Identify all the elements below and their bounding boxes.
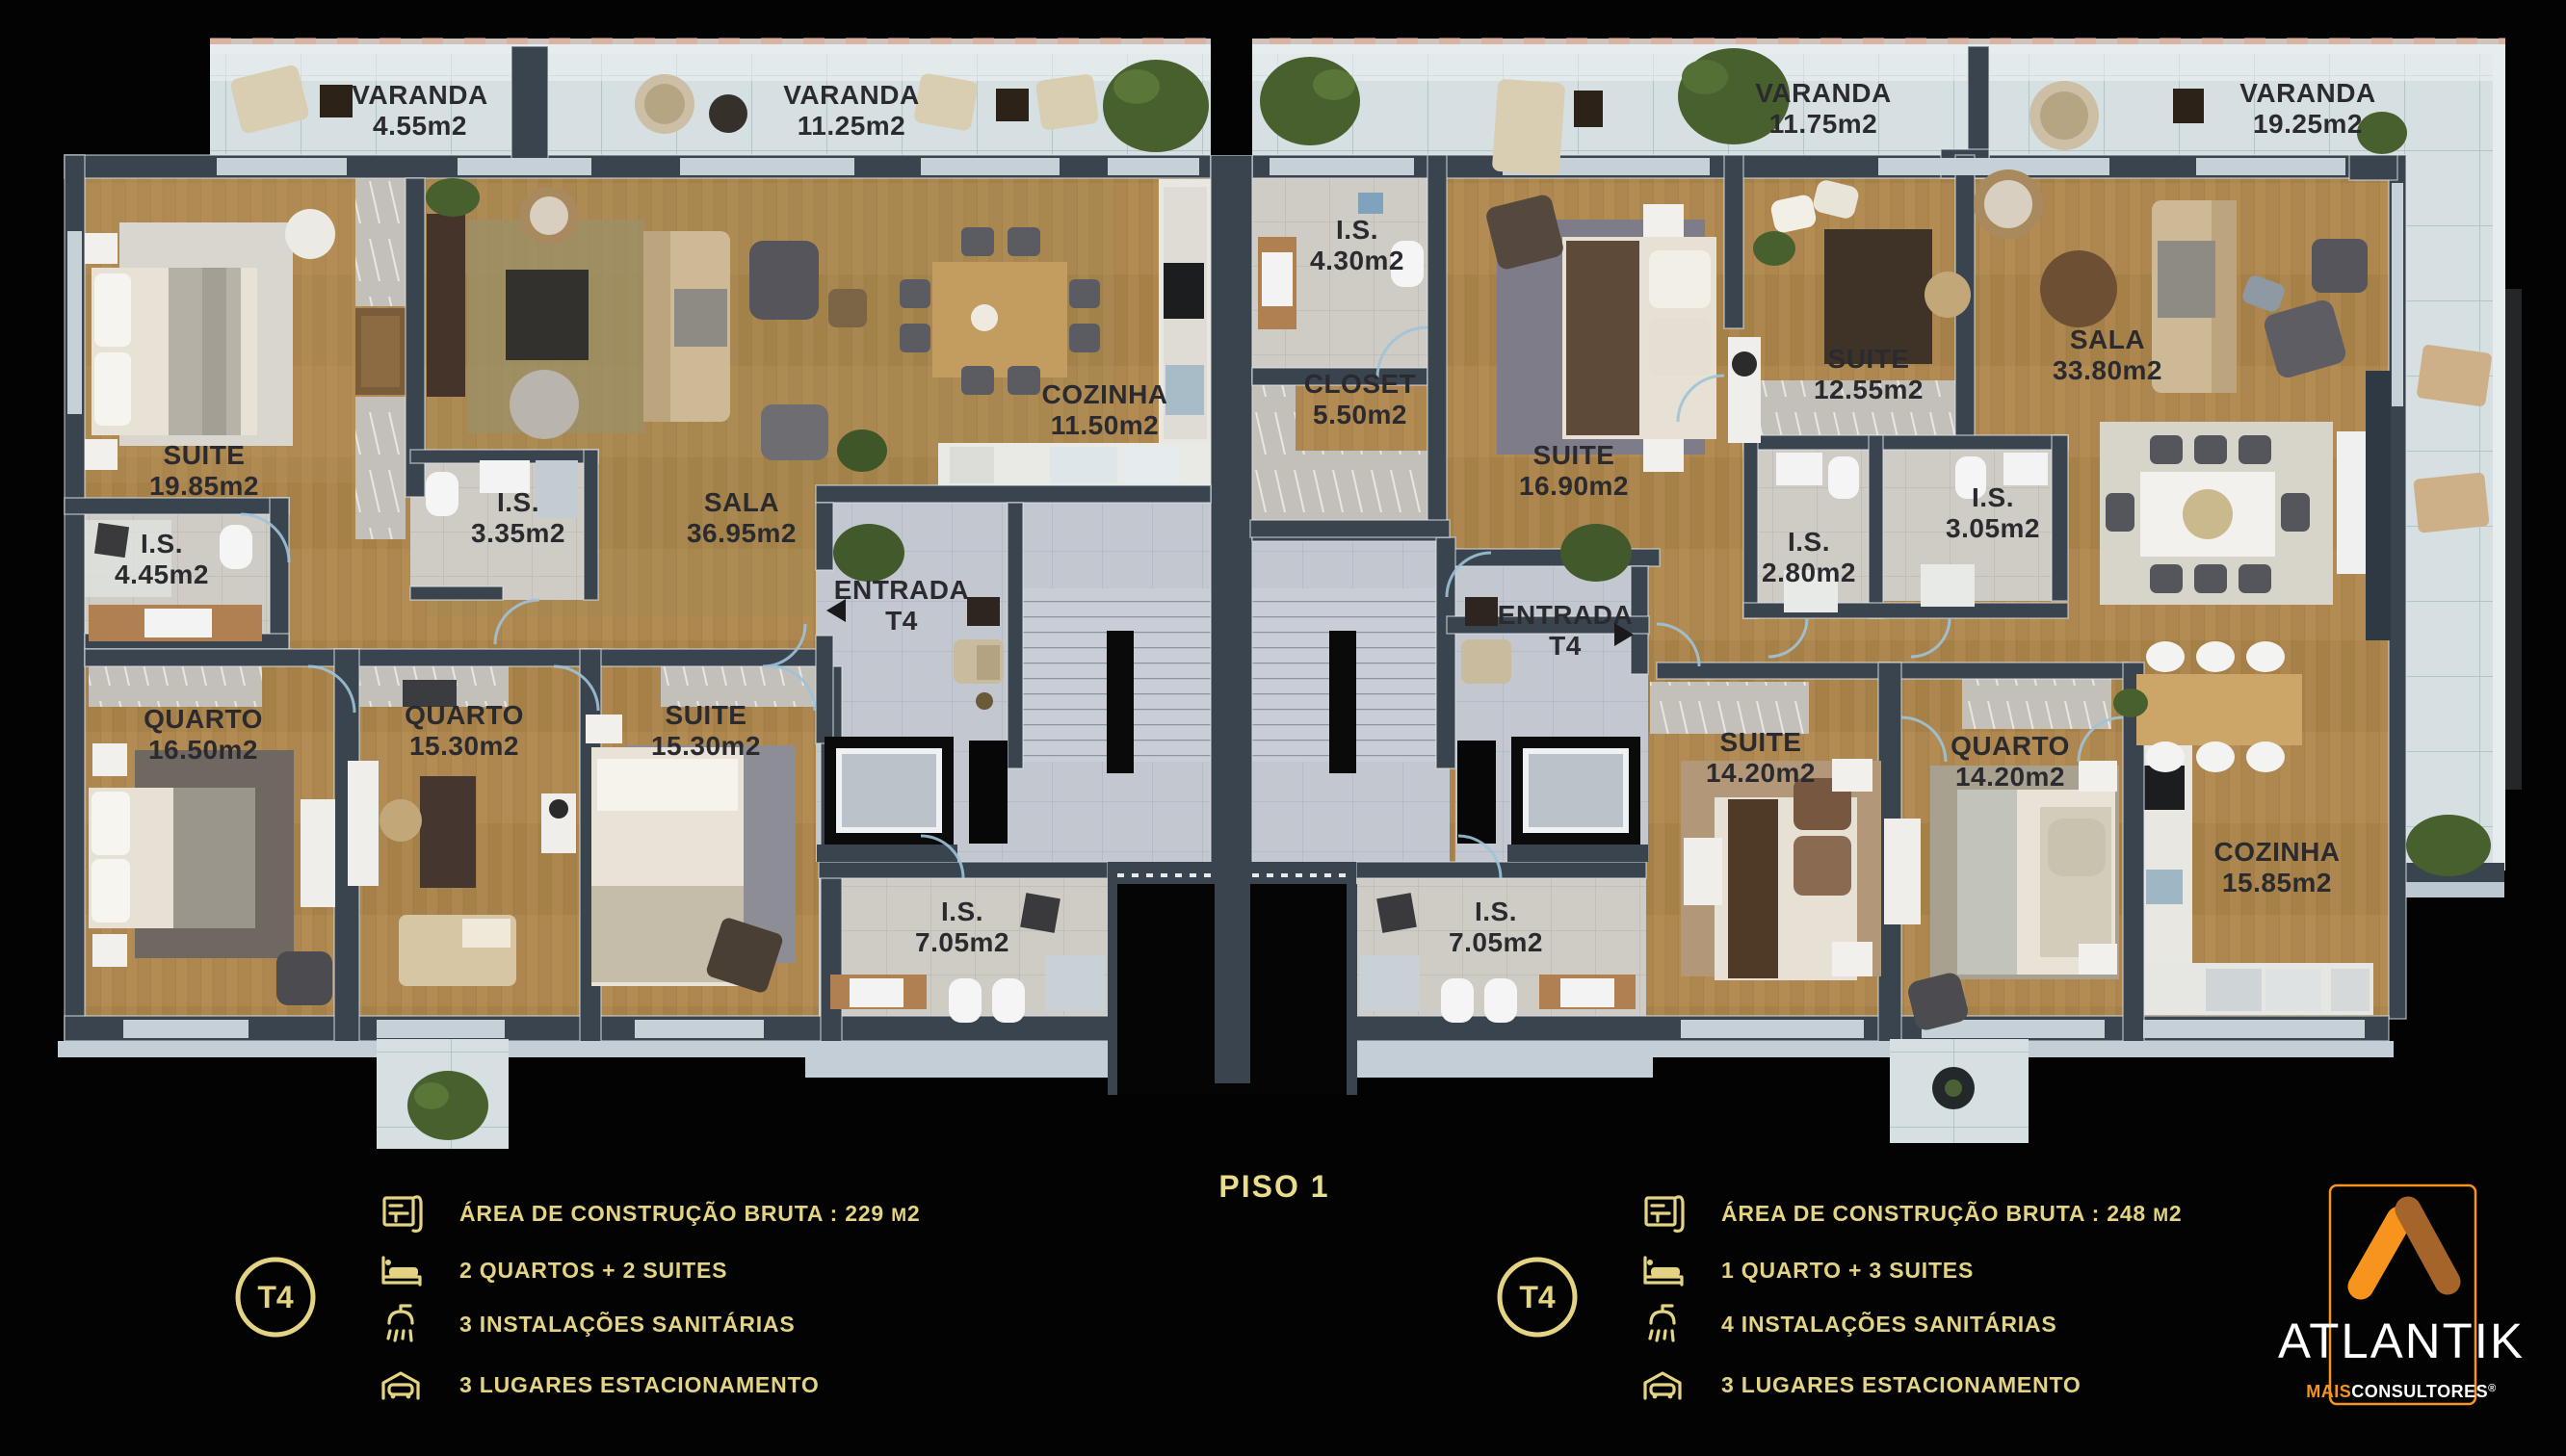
- svg-text:3 LUGARES ESTACIONAMENTO: 3 LUGARES ESTACIONAMENTO: [1721, 1372, 2082, 1397]
- svg-text:MAISCONSULTORES®: MAISCONSULTORES®: [2306, 1382, 2496, 1401]
- svg-text:T4: T4: [1549, 631, 1582, 661]
- svg-text:QUARTO: QUARTO: [405, 700, 524, 730]
- svg-text:5.50m2: 5.50m2: [1313, 400, 1407, 429]
- svg-text:T4: T4: [885, 606, 918, 636]
- svg-text:4.55m2: 4.55m2: [373, 111, 467, 141]
- svg-text:VARANDA: VARANDA: [352, 80, 487, 110]
- svg-text:SUITE: SUITE: [1720, 727, 1802, 757]
- svg-text:SUITE: SUITE: [1828, 344, 1910, 374]
- svg-text:16.50m2: 16.50m2: [148, 735, 258, 765]
- svg-text:QUARTO: QUARTO: [1951, 731, 2070, 761]
- svg-text:11.50m2: 11.50m2: [1051, 410, 1160, 440]
- svg-text:16.90m2: 16.90m2: [1519, 471, 1629, 501]
- svg-text:7.05m2: 7.05m2: [915, 927, 1009, 957]
- svg-text:36.95m2: 36.95m2: [687, 518, 797, 548]
- svg-text:VARANDA: VARANDA: [783, 80, 919, 110]
- svg-text:3.35m2: 3.35m2: [471, 518, 565, 548]
- svg-text:I.S.: I.S.: [941, 897, 983, 926]
- svg-text:I.S.: I.S.: [1788, 527, 1830, 557]
- svg-text:19.25m2: 19.25m2: [2253, 109, 2363, 139]
- svg-text:3.05m2: 3.05m2: [1946, 513, 2040, 543]
- svg-text:SALA: SALA: [704, 487, 779, 517]
- svg-text:2.80m2: 2.80m2: [1762, 558, 1856, 587]
- svg-text:T4: T4: [257, 1280, 294, 1314]
- svg-text:19.85m2: 19.85m2: [149, 471, 259, 501]
- svg-text:15.85m2: 15.85m2: [2222, 868, 2332, 897]
- svg-text:11.25m2: 11.25m2: [798, 111, 906, 141]
- svg-text:I.S.: I.S.: [1336, 215, 1378, 245]
- svg-text:VARANDA: VARANDA: [2239, 78, 2375, 108]
- svg-text:2 QUARTOS + 2 SUITES: 2 QUARTOS + 2 SUITES: [459, 1258, 727, 1283]
- svg-text:SUITE: SUITE: [164, 440, 246, 470]
- svg-text:SUITE: SUITE: [1533, 440, 1615, 470]
- svg-text:SUITE: SUITE: [666, 700, 747, 730]
- svg-text:COZINHA: COZINHA: [1041, 379, 1167, 409]
- svg-text:1 QUARTO + 3 SUITES: 1 QUARTO + 3 SUITES: [1721, 1258, 1974, 1283]
- svg-text:15.30m2: 15.30m2: [409, 731, 519, 761]
- svg-text:ÁREA DE CONSTRUÇÃO BRUTA : 22: ÁREA DE CONSTRUÇÃO BRUTA : 229 M2: [459, 1200, 920, 1226]
- svg-text:4.45m2: 4.45m2: [115, 559, 209, 589]
- svg-text:I.S.: I.S.: [1475, 897, 1517, 926]
- svg-text:ENTRADA: ENTRADA: [834, 575, 969, 605]
- svg-text:ÁREA DE CONSTRUÇÃO BRUTA : 24: ÁREA DE CONSTRUÇÃO BRUTA : 248 M2: [1721, 1200, 2182, 1226]
- svg-text:12.55m2: 12.55m2: [1814, 375, 1924, 404]
- svg-text:4.30m2: 4.30m2: [1310, 246, 1404, 275]
- svg-text:COZINHA: COZINHA: [2213, 837, 2340, 867]
- svg-text:33.80m2: 33.80m2: [2053, 355, 2162, 385]
- svg-text:I.S.: I.S.: [497, 487, 539, 517]
- svg-text:ENTRADA: ENTRADA: [1498, 600, 1633, 630]
- svg-text:PISO 1: PISO 1: [1218, 1169, 1329, 1204]
- svg-text:3 LUGARES ESTACIONAMENTO: 3 LUGARES ESTACIONAMENTO: [459, 1372, 820, 1397]
- svg-text:3 INSTALAÇÕES SANITÁRIAS: 3 INSTALAÇÕES SANITÁRIAS: [459, 1311, 795, 1337]
- svg-text:VARANDA: VARANDA: [1755, 78, 1891, 108]
- svg-text:11.75m2: 11.75m2: [1769, 109, 1878, 139]
- svg-text:14.20m2: 14.20m2: [1706, 758, 1816, 788]
- svg-text:CLOSET: CLOSET: [1304, 369, 1417, 399]
- svg-text:ATLANTIK: ATLANTIK: [2278, 1313, 2525, 1368]
- svg-text:7.05m2: 7.05m2: [1449, 927, 1543, 957]
- svg-text:T4: T4: [1519, 1280, 1556, 1314]
- svg-text:I.S.: I.S.: [141, 529, 183, 559]
- svg-text:4 INSTALAÇÕES SANITÁRIAS: 4 INSTALAÇÕES SANITÁRIAS: [1721, 1311, 2056, 1337]
- svg-text:QUARTO: QUARTO: [144, 704, 263, 734]
- svg-text:SALA: SALA: [2070, 325, 2145, 354]
- svg-text:I.S.: I.S.: [1972, 482, 2014, 512]
- svg-text:15.30m2: 15.30m2: [651, 731, 761, 761]
- svg-text:14.20m2: 14.20m2: [1955, 762, 2065, 792]
